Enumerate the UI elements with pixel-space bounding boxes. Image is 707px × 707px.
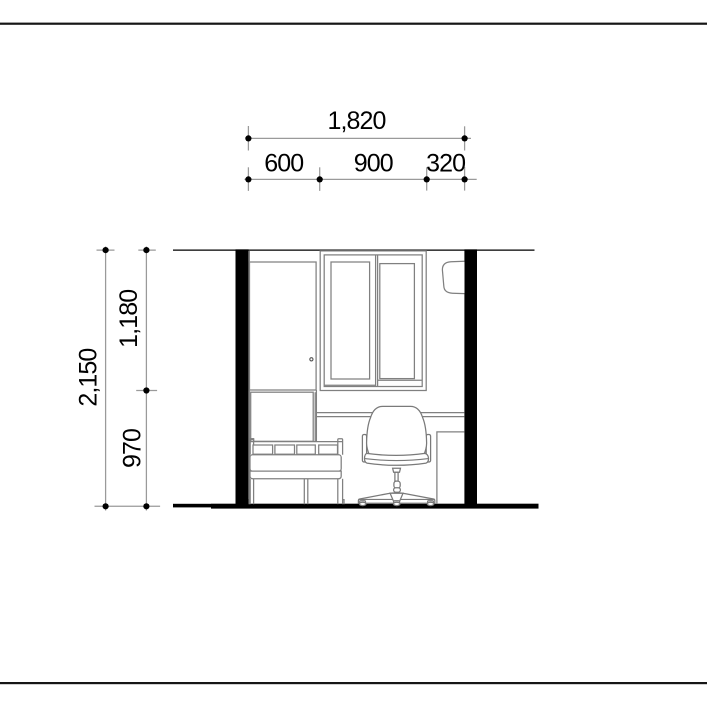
svg-text:970: 970 xyxy=(118,429,146,468)
svg-text:2,150: 2,150 xyxy=(74,349,102,407)
svg-text:320: 320 xyxy=(426,150,465,178)
svg-text:600: 600 xyxy=(264,150,303,178)
svg-text:1,180: 1,180 xyxy=(115,290,143,348)
svg-text:900: 900 xyxy=(354,150,393,178)
svg-text:1,820: 1,820 xyxy=(327,107,385,135)
